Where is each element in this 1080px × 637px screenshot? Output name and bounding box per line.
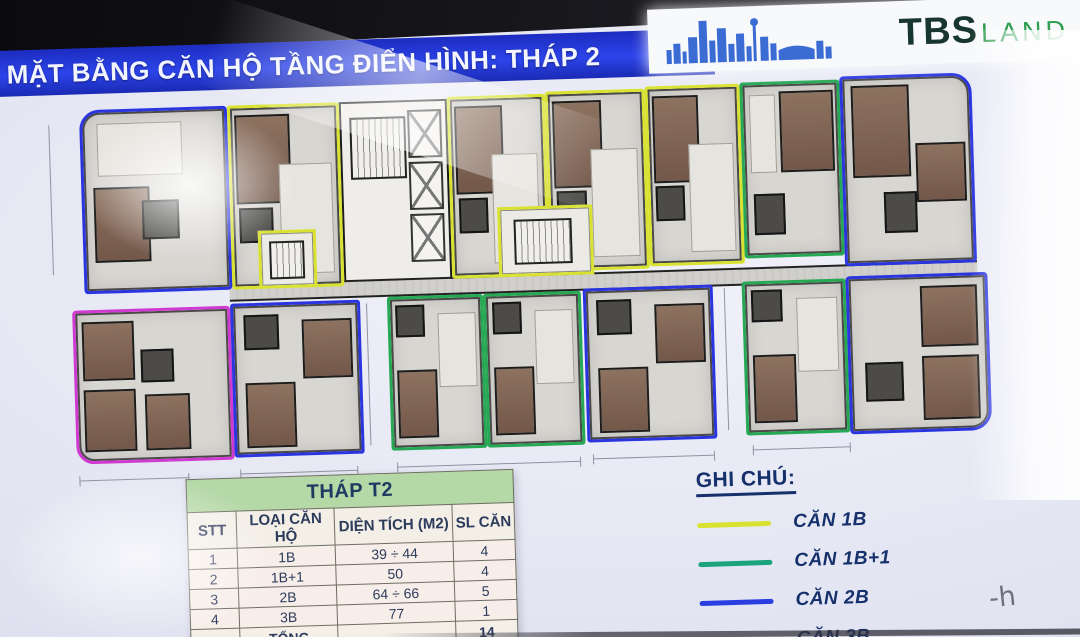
bed-room xyxy=(850,85,911,179)
elevator-icon xyxy=(410,213,445,262)
photo-of-slide: MẶT BẰNG CĂN HỘ TẦNG ĐIỂN HÌNH: THÁP 2 T… xyxy=(0,0,1080,637)
unit-table-body: 11B39 ÷ 44421B+150432B64 ÷ 66543B771TỔNG… xyxy=(188,539,518,637)
elevator-icon xyxy=(409,161,444,210)
bath-room xyxy=(596,299,632,336)
patch-room xyxy=(796,296,839,371)
bath-room xyxy=(656,186,686,222)
building-core xyxy=(339,99,453,286)
dimension-line xyxy=(48,125,54,275)
dimension-line xyxy=(366,303,371,445)
stairs xyxy=(269,240,305,279)
bed-room xyxy=(753,354,798,423)
unit-1b-top-4 xyxy=(644,84,745,267)
bed-room xyxy=(302,318,353,379)
bath-room xyxy=(243,314,279,351)
table-col-header: SL CĂN xyxy=(452,502,515,541)
legend-title: GHI CHÚ: xyxy=(695,466,796,497)
table-cell: 4 xyxy=(453,539,516,561)
patch-room xyxy=(748,95,777,174)
unit-3b-bottom-left xyxy=(72,306,235,465)
table-cell: 5 xyxy=(454,579,517,601)
bath-room xyxy=(395,305,425,338)
dimension-line xyxy=(593,455,715,460)
patch-room xyxy=(437,312,477,387)
bath-room xyxy=(884,191,918,232)
bed-room xyxy=(82,321,136,382)
dimension-line xyxy=(724,288,729,430)
legend-item: CĂN 2B xyxy=(699,586,892,614)
legend: GHI CHÚ: CĂN 1BCĂN 1B+1CĂN 2BCĂN 3B xyxy=(695,463,893,637)
table-cell: TỔNG xyxy=(240,625,339,637)
table-cell: 1 xyxy=(188,548,238,570)
unit-2b-bottom-2 xyxy=(583,285,718,443)
legend-swatch xyxy=(698,559,772,566)
unit-summary-table: THÁP T2 STTLOẠI CĂN HỘDIỆN TÍCH (M2)SL C… xyxy=(185,469,518,637)
legend-label: CĂN 1B xyxy=(793,509,867,533)
patch-room xyxy=(591,148,641,257)
elevator-icon xyxy=(407,109,442,158)
stair-annex xyxy=(497,204,594,277)
bed-room xyxy=(919,284,978,347)
bed-room xyxy=(145,393,192,451)
table-cell: 4 xyxy=(190,608,240,630)
legend-item: CĂN 1B+1 xyxy=(698,547,891,575)
table-col-header: STT xyxy=(187,511,237,550)
legend-swatch xyxy=(697,520,771,527)
bath-room xyxy=(753,193,786,235)
slide: MẶT BẰNG CĂN HỘ TẦNG ĐIỂN HÌNH: THÁP 2 T… xyxy=(0,0,1080,637)
brand-logo: TBS LAND xyxy=(898,6,1069,55)
unit-2b-bottom-1 xyxy=(230,300,365,458)
table-cell: 3 xyxy=(189,588,239,610)
unit-2b-top-right xyxy=(839,72,977,266)
bath-room xyxy=(458,197,489,233)
legend-label: CĂN 2B xyxy=(795,587,869,611)
unit-2b-top-left xyxy=(79,106,233,295)
stairs xyxy=(349,116,407,180)
bed-room xyxy=(84,389,138,453)
stair-annex xyxy=(258,229,318,289)
brand-tbs-text: TBS xyxy=(898,9,978,55)
patch-room xyxy=(96,121,183,177)
floor-plan xyxy=(53,70,995,499)
bath-room xyxy=(140,349,174,383)
bath-room xyxy=(141,199,179,239)
unit-2b-bottom-right xyxy=(845,272,992,434)
unit-1b1-bottom-3 xyxy=(742,278,851,435)
brand-land-text: LAND xyxy=(980,15,1069,49)
bed-room xyxy=(494,366,537,435)
dimension-line xyxy=(753,446,851,450)
bed-room xyxy=(245,382,297,449)
bed-room xyxy=(915,142,967,202)
unit-1b1-top xyxy=(739,79,844,258)
bed-room xyxy=(922,354,981,420)
table-cell: 2 xyxy=(189,568,239,590)
bed-room xyxy=(654,303,705,364)
table-cell xyxy=(191,628,241,637)
dimension-line xyxy=(79,477,189,481)
patch-room xyxy=(534,309,575,384)
stairs xyxy=(514,218,573,265)
legend-item: CĂN 1B xyxy=(697,508,890,536)
bath-room xyxy=(865,361,904,402)
dimension-line xyxy=(397,461,581,468)
bed-room xyxy=(598,367,650,434)
bath-room xyxy=(492,302,522,335)
legend-label: CĂN 1B+1 xyxy=(794,547,891,572)
bath-room xyxy=(751,289,783,323)
table-col-header: LOẠI CĂN HỘ xyxy=(236,508,336,548)
bed-room xyxy=(398,369,440,438)
legend-swatch xyxy=(700,598,774,605)
patch-room xyxy=(688,143,736,252)
unit-1b1-bottom-2 xyxy=(483,291,586,448)
unit-1b1-bottom-1 xyxy=(387,294,488,451)
legend-items: CĂN 1BCĂN 1B+1CĂN 2BCĂN 3B xyxy=(697,508,894,637)
table-col-header: DIỆN TÍCH (M2) xyxy=(334,504,453,545)
table-cell: 1 xyxy=(455,599,518,621)
table-cell: 4 xyxy=(454,559,517,581)
handwritten-mark: -h xyxy=(988,581,1018,615)
bed-room xyxy=(778,89,835,172)
city-skyline-icon xyxy=(663,10,840,66)
